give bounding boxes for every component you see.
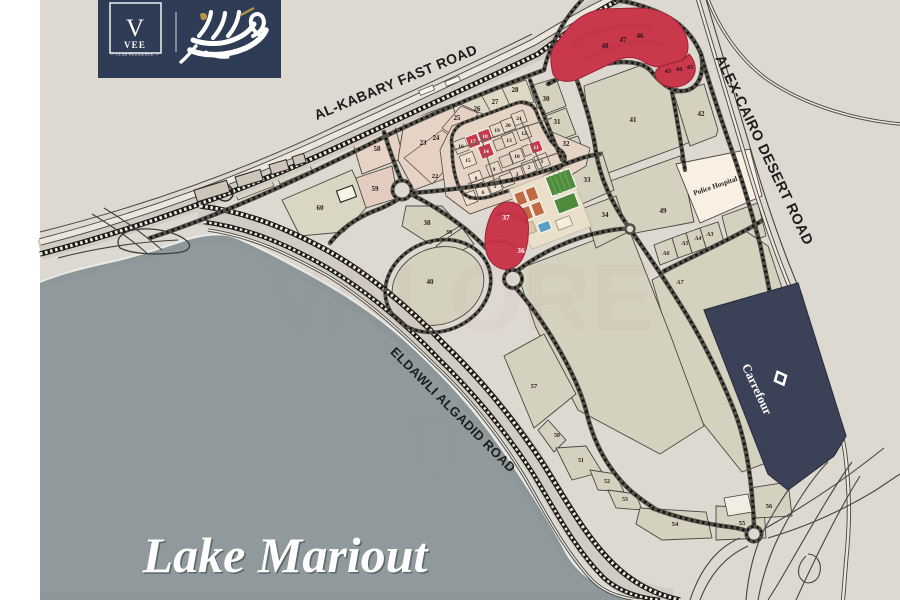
svg-text:22: 22	[432, 173, 439, 180]
svg-text:2: 2	[528, 165, 531, 171]
svg-text:25: 25	[454, 115, 461, 122]
svg-text:1: 1	[541, 159, 544, 165]
svg-text:52: 52	[604, 479, 610, 485]
svg-text:VALORE: VALORE	[266, 245, 655, 351]
svg-text:36: 36	[517, 246, 525, 255]
svg-text:26: 26	[474, 106, 481, 113]
svg-text:41: 41	[630, 116, 638, 124]
svg-text:7: 7	[469, 196, 472, 202]
svg-text:49: 49	[660, 207, 668, 215]
svg-text:V: V	[126, 15, 144, 42]
svg-text:15: 15	[465, 158, 471, 164]
svg-text:53: 53	[622, 497, 628, 503]
svg-text:12: 12	[521, 131, 527, 137]
svg-text:21: 21	[516, 116, 522, 122]
svg-text:VEE: VEE	[124, 40, 146, 50]
svg-text:38: 38	[424, 219, 432, 227]
svg-text:58: 58	[374, 145, 382, 153]
svg-text:19: 19	[494, 128, 500, 134]
svg-text:28: 28	[512, 87, 519, 94]
svg-text:44: 44	[676, 66, 683, 73]
svg-text:55: 55	[739, 520, 746, 527]
svg-text:20: 20	[505, 123, 511, 129]
svg-text:A7: A7	[675, 280, 684, 286]
svg-text:A6: A6	[661, 251, 669, 257]
svg-text:A4: A4	[693, 236, 701, 242]
svg-text:A5: A5	[680, 241, 688, 247]
svg-text:10: 10	[514, 154, 520, 160]
svg-text:43: 43	[665, 68, 672, 75]
svg-text:48: 48	[602, 42, 610, 50]
svg-text:47: 47	[620, 36, 628, 44]
svg-text:14: 14	[483, 149, 489, 155]
svg-text:39: 39	[446, 229, 452, 236]
svg-text:5: 5	[494, 184, 497, 190]
svg-text:13: 13	[506, 138, 512, 144]
svg-text:11: 11	[533, 145, 538, 151]
svg-text:— CLUB RESIDENCE —: — CLUB RESIDENCE —	[111, 53, 160, 57]
svg-text:33: 33	[584, 176, 592, 184]
svg-text:Lake Mariout: Lake Mariout	[142, 527, 430, 583]
svg-text:3: 3	[516, 172, 519, 178]
svg-text:56: 56	[766, 503, 773, 510]
svg-text:51: 51	[578, 458, 584, 464]
svg-text:17: 17	[470, 139, 476, 145]
svg-text:50: 50	[554, 433, 560, 439]
svg-text:27: 27	[492, 99, 499, 106]
svg-text:30: 30	[543, 95, 551, 103]
svg-text:4: 4	[506, 178, 509, 184]
svg-text:A3: A3	[705, 232, 713, 238]
svg-text:9: 9	[493, 167, 496, 173]
svg-text:59: 59	[372, 185, 380, 193]
svg-text:37: 37	[502, 213, 510, 222]
svg-text:60: 60	[317, 204, 325, 212]
svg-text:40: 40	[427, 278, 435, 286]
svg-text:45: 45	[687, 64, 694, 71]
svg-text:54: 54	[672, 521, 679, 528]
svg-text:23: 23	[420, 140, 427, 147]
svg-text:24: 24	[433, 135, 440, 142]
svg-text:6: 6	[482, 190, 485, 196]
svg-text:18: 18	[482, 134, 488, 140]
svg-text:31: 31	[554, 118, 562, 126]
svg-text:46: 46	[637, 32, 645, 40]
svg-text:34: 34	[602, 211, 610, 219]
svg-text:16: 16	[458, 144, 464, 150]
svg-text:32: 32	[563, 140, 571, 148]
svg-text:42: 42	[698, 110, 706, 118]
svg-text:8: 8	[475, 176, 478, 182]
svg-text:57: 57	[531, 383, 538, 390]
